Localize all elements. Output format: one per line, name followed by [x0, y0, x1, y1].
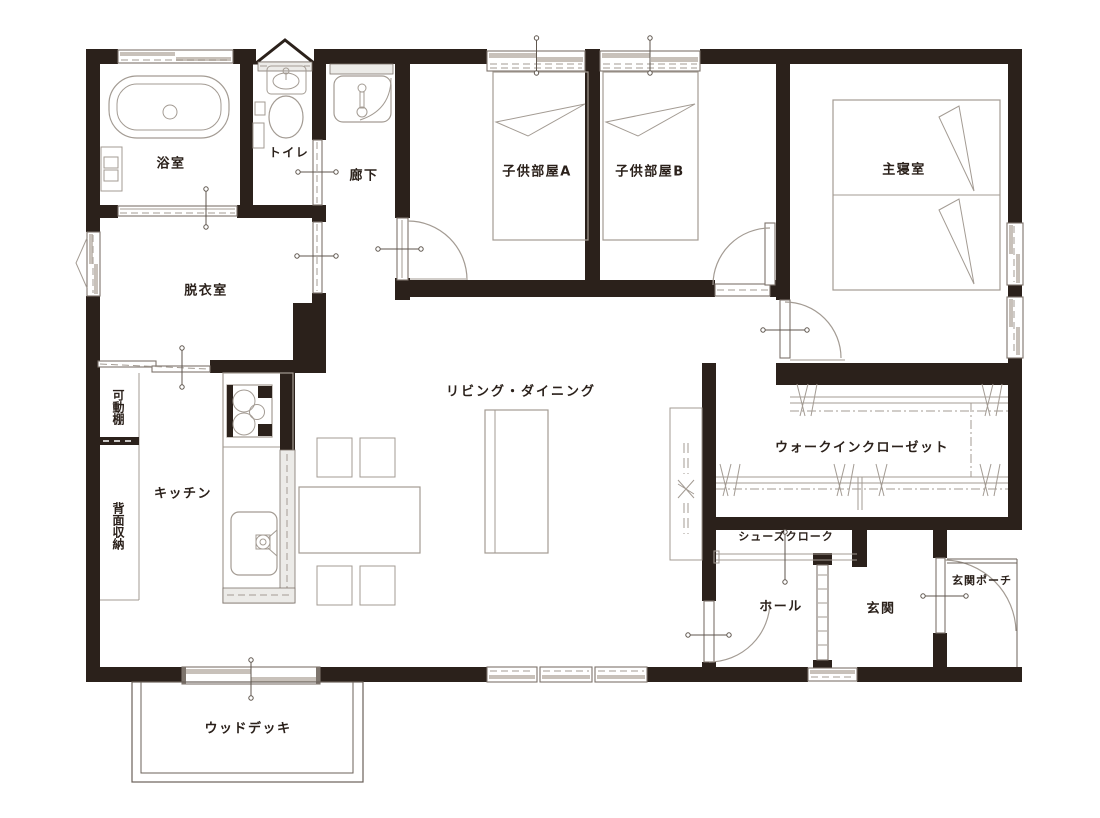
bed-kids-b-icon	[603, 72, 698, 240]
window-bath	[118, 50, 233, 63]
sliding-door-bath	[118, 206, 237, 216]
room-label-wood-deck: ウッドデッキ	[204, 718, 291, 737]
window-living-3	[595, 667, 647, 682]
room-label-bath: 浴室	[156, 153, 185, 172]
sofa-icon	[485, 410, 548, 553]
window-master-1	[1007, 223, 1023, 285]
bed-master-icon	[833, 100, 1000, 290]
sliding-door-kitchen	[98, 361, 210, 372]
door-kids-b	[713, 223, 775, 296]
room-label-wic: ウォークインクローゼット	[775, 437, 949, 456]
window-entrance	[808, 668, 857, 681]
window-washroom	[76, 232, 100, 296]
doors	[98, 140, 1016, 662]
coat-closet-icon	[670, 408, 702, 560]
room-label-washroom: 脱衣室	[184, 280, 228, 299]
bed-kids-a-icon	[493, 72, 588, 240]
kitchen-sink-icon	[231, 512, 277, 575]
window-master-2	[1007, 297, 1023, 358]
bathtub-icon	[101, 76, 229, 191]
room-label-shoe-cloak: シューズクローク	[738, 528, 833, 544]
room-label-hall: ホール	[759, 596, 803, 615]
floor-plan-drawing	[0, 0, 1100, 818]
room-label-master: 主寝室	[882, 159, 926, 178]
room-label-entrance: 玄関	[866, 598, 895, 617]
window-living-2	[540, 667, 592, 682]
room-label-kitchen: キッチン	[154, 483, 212, 502]
sliding-door-washroom	[313, 222, 322, 293]
room-label-back-storage: 背面収納	[112, 502, 124, 550]
dining-table-icon	[299, 438, 420, 605]
room-label-kids-b: 子供部屋B	[615, 161, 684, 180]
room-label-hallway: 廊下	[349, 165, 378, 184]
window-living-1	[487, 667, 537, 682]
room-label-porch: 玄関ポーチ	[952, 572, 1012, 588]
sink-hallway-icon	[330, 64, 393, 122]
floor-plan: 浴室 トイレ 廊下 子供部屋A 子供部屋B 主寝室 脱衣室 リビング・ダイニング…	[0, 0, 1100, 818]
room-label-toilet: トイレ	[269, 144, 310, 161]
room-label-movable-shelf: 可動棚	[112, 389, 124, 425]
partition-genkan	[817, 565, 828, 660]
room-label-living: リビング・ダイニング	[446, 381, 596, 400]
stove-icon	[227, 385, 272, 437]
casement-arrow-icon	[76, 238, 87, 288]
toilet-icon	[253, 66, 306, 148]
room-label-kids-a: 子供部屋A	[502, 161, 572, 180]
walls	[86, 49, 1022, 682]
